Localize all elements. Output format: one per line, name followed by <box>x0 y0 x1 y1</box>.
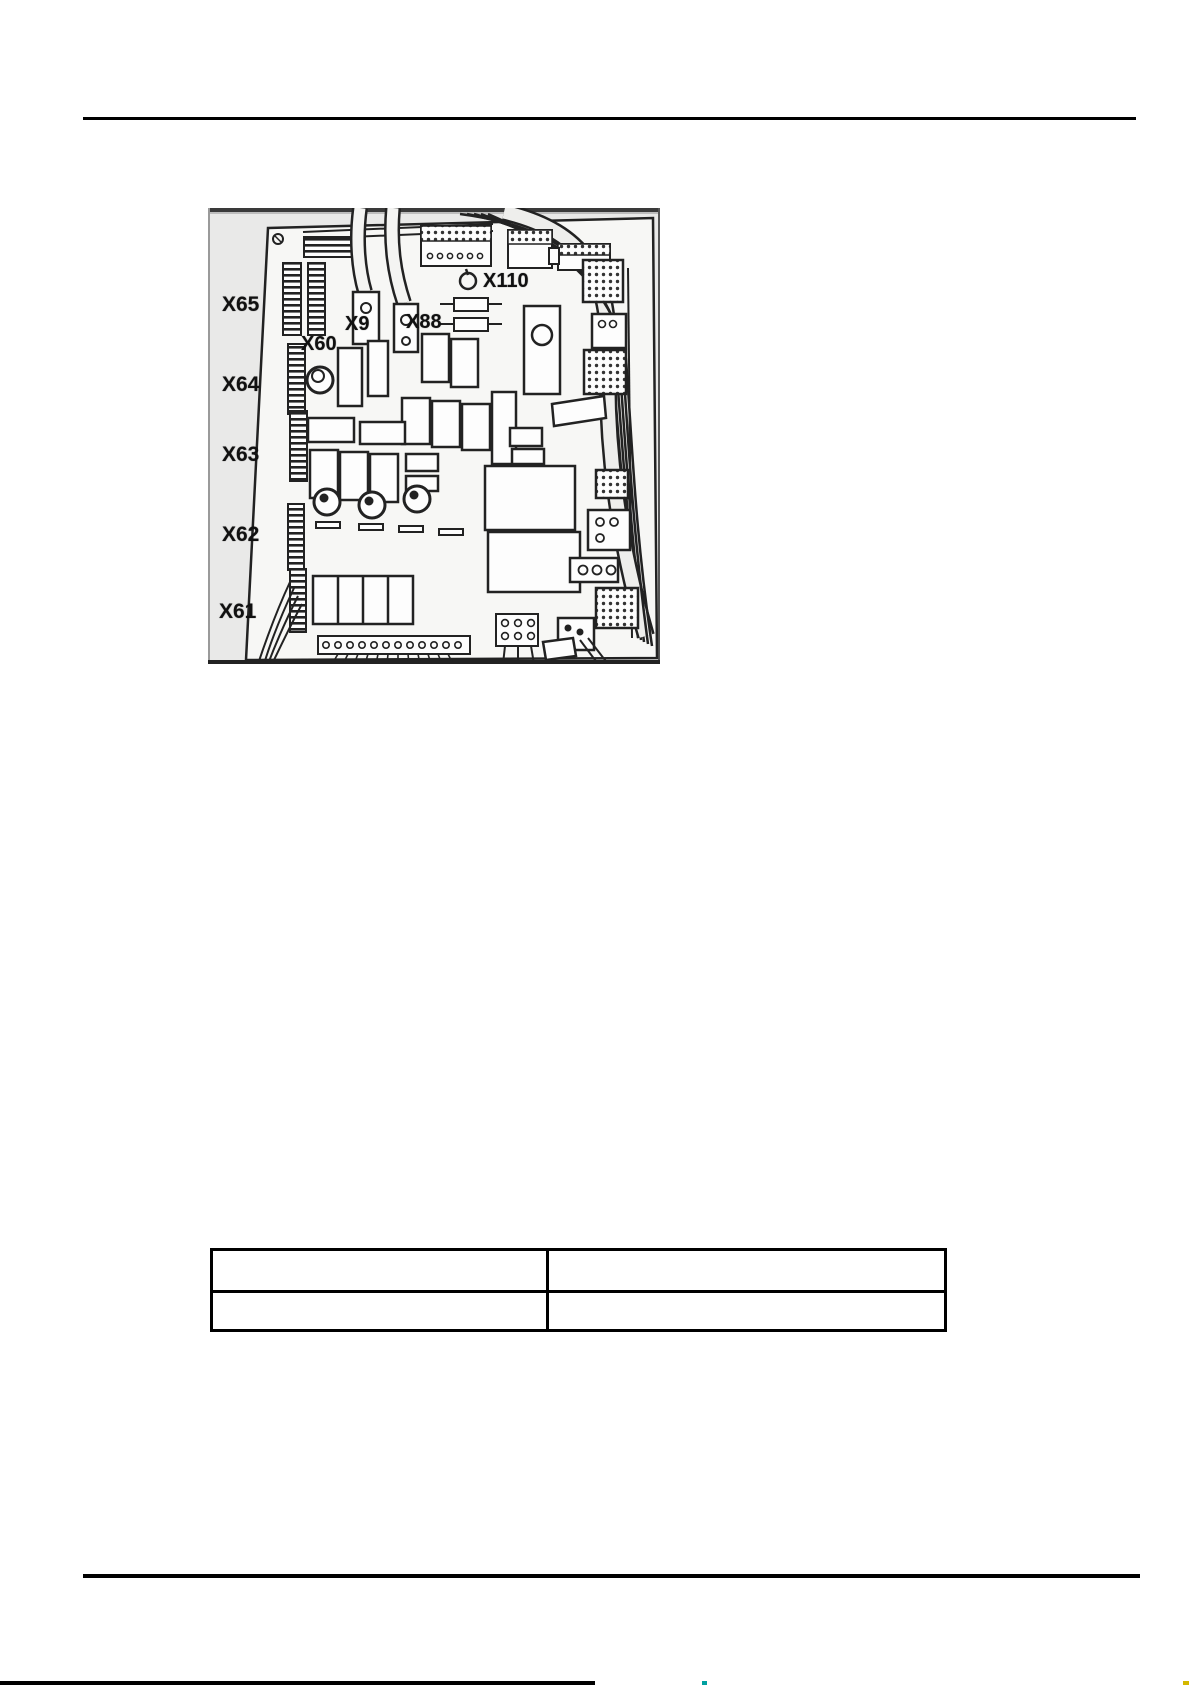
header-rule <box>83 117 1136 120</box>
connector-label-x110: X110 <box>483 271 529 291</box>
table-cell <box>213 1293 549 1329</box>
connector-label-x88: X88 <box>406 312 442 332</box>
x61-relay-block <box>313 576 413 624</box>
relay-tall <box>524 306 560 394</box>
connector-label-x63: X63 <box>222 444 259 465</box>
connector-label-x64: X64 <box>222 374 259 395</box>
page-edge-line <box>0 1681 595 1685</box>
connector-label-x61: X61 <box>219 601 256 622</box>
connector-label-x9: X9 <box>345 314 369 334</box>
connector-label-x60: X60 <box>301 334 337 354</box>
document-page: X65 X64 X63 X62 X61 X60 X9 X88 X110 <box>0 0 1191 1685</box>
table-row <box>213 1251 944 1293</box>
connector-label-x62: X62 <box>222 524 259 545</box>
board-drawing <box>208 208 660 664</box>
edge-fleck-teal <box>702 1681 707 1685</box>
edge-fleck-yellow <box>1183 1681 1189 1685</box>
table-row <box>213 1293 944 1329</box>
table-cell <box>213 1251 549 1290</box>
circuit-board-figure: X65 X64 X63 X62 X61 X60 X9 X88 X110 <box>208 208 660 664</box>
connector-label-x65: X65 <box>222 294 259 315</box>
footer-rule <box>83 1574 1140 1578</box>
table-cell <box>549 1251 944 1290</box>
empty-table <box>210 1248 947 1332</box>
table-cell <box>549 1293 944 1329</box>
